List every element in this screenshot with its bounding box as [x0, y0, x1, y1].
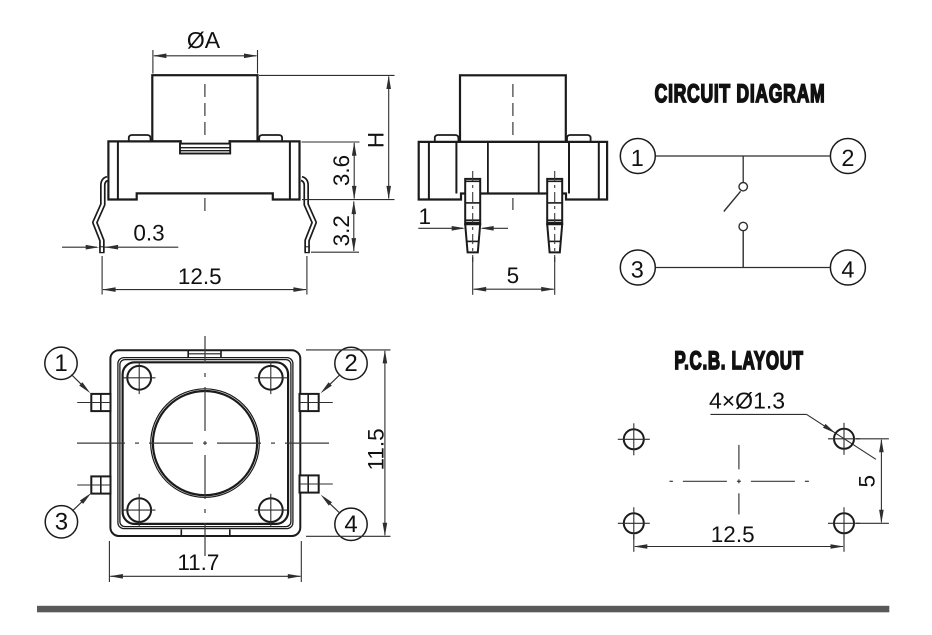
svg-text:12.5: 12.5 — [711, 522, 755, 547]
svg-text:5: 5 — [507, 263, 520, 288]
svg-text:4: 4 — [841, 256, 854, 282]
svg-text:CIRCUIT DIAGRAM: CIRCUIT DIAGRAM — [655, 80, 826, 108]
svg-text:0.3: 0.3 — [133, 221, 164, 246]
svg-text:H: H — [364, 132, 389, 148]
svg-text:11.7: 11.7 — [177, 550, 219, 575]
svg-text:3.6: 3.6 — [329, 155, 354, 186]
svg-text:4: 4 — [344, 511, 357, 538]
svg-text:1: 1 — [54, 350, 67, 377]
svg-text:ØA: ØA — [187, 27, 221, 53]
svg-text:1: 1 — [419, 204, 432, 229]
svg-text:2: 2 — [344, 350, 357, 377]
svg-text:1: 1 — [631, 145, 644, 171]
svg-text:12.5: 12.5 — [178, 264, 222, 289]
svg-text:3: 3 — [631, 256, 644, 282]
svg-text:P.C.B. LAYOUT: P.C.B. LAYOUT — [674, 347, 803, 375]
svg-text:4×Ø1.3: 4×Ø1.3 — [709, 388, 785, 414]
svg-text:2: 2 — [841, 145, 854, 171]
svg-text:5: 5 — [855, 475, 880, 488]
svg-text:11.5: 11.5 — [364, 428, 389, 470]
svg-text:3.2: 3.2 — [329, 215, 354, 246]
svg-text:3: 3 — [55, 509, 68, 536]
